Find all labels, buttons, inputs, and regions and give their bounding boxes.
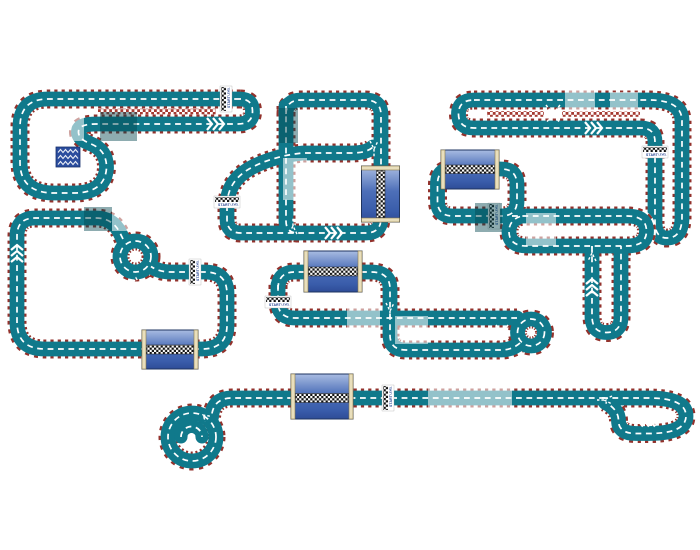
layout-left-rectangle-circuit: START LEVEL (11, 218, 227, 369)
roundabout-asterisk-icon (132, 253, 139, 261)
bridge (441, 150, 499, 189)
layout-bottom-drag-strip: START LEVEL (168, 374, 686, 461)
grandstand-sign-icon (56, 147, 80, 167)
checkered-median (487, 111, 544, 117)
start-finish-line: START LEVEL (265, 296, 291, 308)
bridge (142, 330, 198, 369)
bridge (362, 166, 400, 222)
svg-text:LEVEL: LEVEL (197, 260, 200, 269)
svg-text:LEVEL: LEVEL (231, 204, 240, 207)
checkered-median (562, 111, 640, 117)
chevrons-left-icon (638, 415, 655, 427)
start-finish-line: START LEVEL (642, 146, 668, 158)
start-finish-line: START LEVEL (214, 196, 240, 208)
svg-text:START: START (389, 394, 393, 407)
roundabout-asterisk-icon (528, 329, 535, 337)
svg-text:START: START (269, 303, 282, 307)
bridge (304, 251, 362, 292)
roundabout-asterisk-icon (188, 433, 195, 441)
bridge (291, 374, 353, 419)
start-finish-line: START LEVEL (382, 385, 394, 411)
svg-text:LEVEL: LEVEL (282, 304, 291, 307)
svg-text:LEVEL: LEVEL (659, 154, 668, 157)
svg-text:START: START (646, 153, 659, 157)
track-sheet: START LEVEL START LEVEL (0, 0, 700, 550)
svg-text:START: START (227, 95, 231, 108)
svg-text:START: START (196, 268, 200, 281)
track-sheet-canvas: START LEVEL START LEVEL (0, 0, 700, 550)
start-finish-line: START LEVEL (189, 259, 201, 285)
start-finish-line: START LEVEL (220, 86, 232, 112)
svg-text:LEVEL: LEVEL (228, 87, 231, 96)
svg-text:START: START (218, 203, 231, 207)
svg-text:LEVEL: LEVEL (390, 386, 393, 395)
